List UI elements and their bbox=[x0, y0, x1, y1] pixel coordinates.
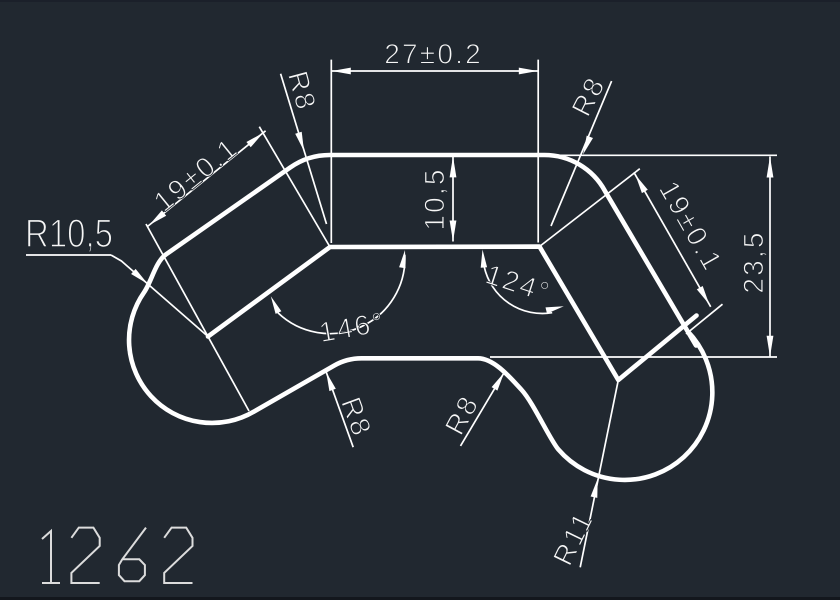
svg-text:23,5: 23,5 bbox=[738, 230, 769, 293]
svg-text:27±0.2: 27±0.2 bbox=[384, 39, 483, 70]
svg-text:R10,5: R10,5 bbox=[25, 212, 113, 256]
svg-text:10,5: 10,5 bbox=[419, 167, 450, 230]
